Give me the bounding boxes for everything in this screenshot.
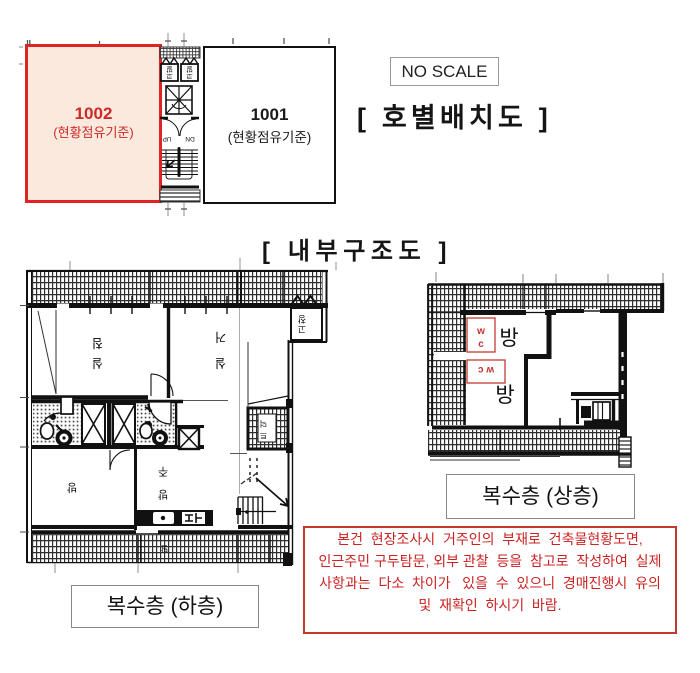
svg-text:방: 방 bbox=[67, 481, 77, 494]
svg-text:방: 방 bbox=[495, 384, 514, 407]
svg-text:c: c bbox=[478, 339, 484, 350]
svg-text:DN: DN bbox=[185, 135, 195, 142]
svg-text:실: 실 bbox=[215, 356, 226, 370]
svg-text:거: 거 bbox=[215, 330, 226, 344]
svg-text:주: 주 bbox=[158, 465, 168, 477]
svg-text:코: 코 bbox=[166, 72, 173, 80]
svg-text:방: 방 bbox=[499, 327, 518, 350]
svg-text:창: 창 bbox=[298, 314, 306, 324]
svg-text:w c: w c bbox=[478, 364, 496, 375]
svg-text:방: 방 bbox=[158, 488, 168, 501]
svg-text:w: w bbox=[476, 326, 485, 337]
svg-text:침: 침 bbox=[92, 336, 103, 350]
svg-text:트: 트 bbox=[260, 431, 267, 440]
svg-text:덕: 덕 bbox=[260, 419, 267, 429]
svg-text:코: 코 bbox=[186, 72, 193, 80]
svg-text:UP: UP bbox=[162, 135, 171, 142]
svg-text:발: 발 bbox=[160, 544, 168, 554]
svg-text:실: 실 bbox=[92, 356, 103, 370]
svg-text:고: 고 bbox=[298, 324, 306, 334]
